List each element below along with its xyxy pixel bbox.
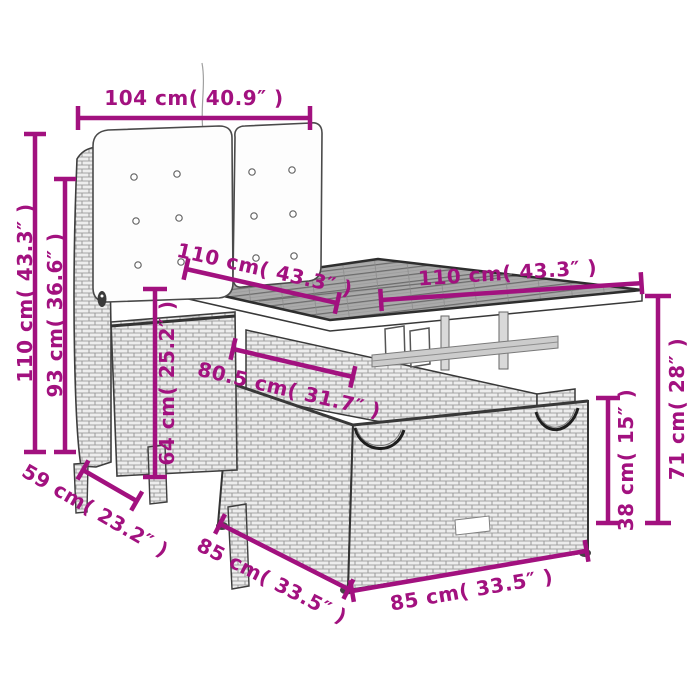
dim-label-seat-height: 64 cm( 25.2″ ) [155,301,179,466]
dim-chair-backrest-height: 93 cm( 36.6″ ) [43,179,76,452]
dim-table-base-height: 38 cm( 15″ ) [596,389,638,531]
product-dimension-diagram: 104 cm( 40.9″ ) 110 cm( 43.3″ ) 93 cm( 3… [0,0,700,700]
diagram-canvas: 104 cm( 40.9″ ) 110 cm( 43.3″ ) 93 cm( 3… [0,0,700,700]
dim-chair-total-height: 110 cm( 43.3″ ) [13,134,46,452]
dim-table-height: 71 cm( 28″ ) [645,296,689,523]
dim-label-chair-total-height: 110 cm( 43.3″ ) [13,203,37,382]
recline-lever-hole [101,295,104,298]
recline-lever-knob [98,291,107,307]
table-support-post-left [441,316,449,370]
table [184,259,642,595]
dim-chair-width: 104 cm( 40.9″ ) [78,86,310,130]
dim-label-table-base-height: 38 cm( 15″ ) [614,389,638,531]
dim-label-chair-backrest-height: 93 cm( 36.6″ ) [43,233,67,398]
dim-label-table-height: 71 cm( 28″ ) [665,338,689,480]
dim-label-chair-width: 104 cm( 40.9″ ) [104,86,283,110]
table-support-post-right [499,312,508,369]
